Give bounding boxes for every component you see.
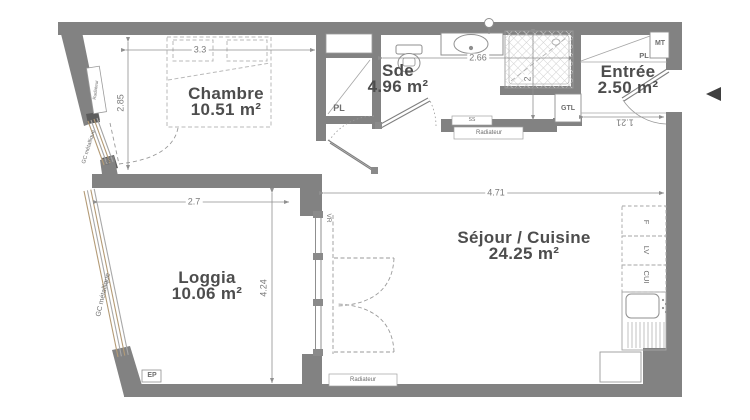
room-area: 24.25 m² — [457, 246, 590, 262]
closet-label-sde: PL — [333, 104, 345, 112]
room-label-chambre: Chambre 10.51 m² — [188, 86, 264, 118]
gtl-label: GTL — [561, 105, 575, 113]
dim-loggia-width: 2.7 — [186, 198, 203, 207]
room-label-entree: Entrée 2.50 m² — [598, 64, 659, 96]
sde-door — [375, 98, 436, 129]
ss-label: SS — [469, 116, 476, 124]
dim-sde-width: 2.66 — [467, 54, 489, 63]
shaft-box — [600, 352, 641, 382]
radiator-label-sejour: Radiateur — [350, 376, 376, 384]
dim-sejour-width: 4.71 — [485, 189, 507, 198]
radiator-label-sde: Radiateur — [476, 129, 502, 137]
meter-box-label: MT — [655, 40, 665, 48]
entrance-arrow-icon — [706, 87, 721, 101]
room-area: 10.51 m² — [188, 102, 264, 118]
room-label-loggia: Loggia 10.06 m² — [172, 270, 242, 302]
dim-chambre-width: 3.3 — [192, 46, 209, 55]
room-label-sejour: Séjour / Cuisine 24.25 m² — [457, 230, 590, 262]
chambre-door — [328, 116, 378, 174]
dim-loggia-depth: 4.24 — [260, 277, 269, 299]
shower-symbol — [505, 31, 573, 88]
dim-entree-width: 1.21 — [614, 118, 636, 127]
dishwasher-label: LV — [642, 246, 650, 255]
room-area: 4.96 m² — [368, 79, 429, 95]
closet-symbol — [326, 34, 372, 114]
fridge-label: F — [642, 220, 650, 225]
kitchen-sink-symbol — [626, 294, 667, 348]
dim-chambre-depth: 2.85 — [117, 92, 126, 114]
shutter-label-sejour: VR — [324, 213, 332, 222]
sejour-west-window — [313, 211, 323, 356]
room-area: 10.06 m² — [172, 286, 242, 302]
room-area: 2.50 m² — [598, 80, 659, 96]
closet-label-entree: PL — [639, 52, 649, 60]
french-door-swing — [333, 215, 394, 354]
ep-label: EP — [147, 372, 156, 380]
room-label-sde: Sde 4.96 m² — [368, 63, 429, 95]
dim-shower-depth: 2 — [524, 74, 533, 83]
cooker-label: CUI — [642, 271, 650, 284]
floor-plan: Chambre 10.51 m² Sde 4.96 m² Entrée 2.50… — [0, 0, 750, 420]
chambre-window-swing — [110, 123, 178, 164]
